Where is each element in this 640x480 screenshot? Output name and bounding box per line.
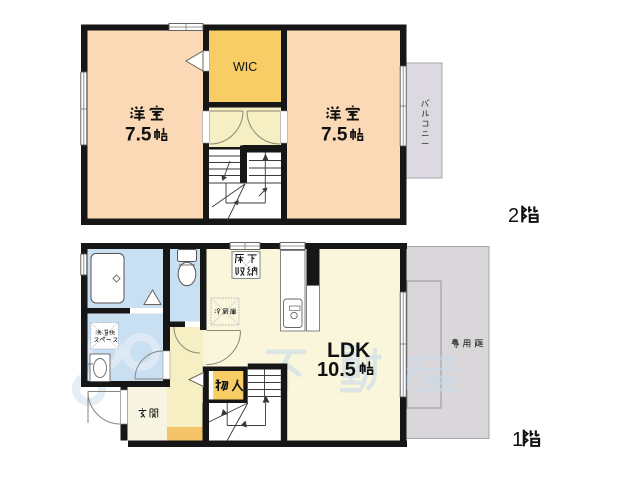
svg-text:7.5: 7.5 bbox=[125, 125, 152, 146]
svg-text:10.5: 10.5 bbox=[317, 359, 356, 381]
svg-text:WIC: WIC bbox=[233, 60, 257, 74]
svg-text:7.5: 7.5 bbox=[321, 125, 348, 146]
svg-text:2: 2 bbox=[508, 205, 519, 227]
svg-text:1: 1 bbox=[512, 429, 523, 451]
